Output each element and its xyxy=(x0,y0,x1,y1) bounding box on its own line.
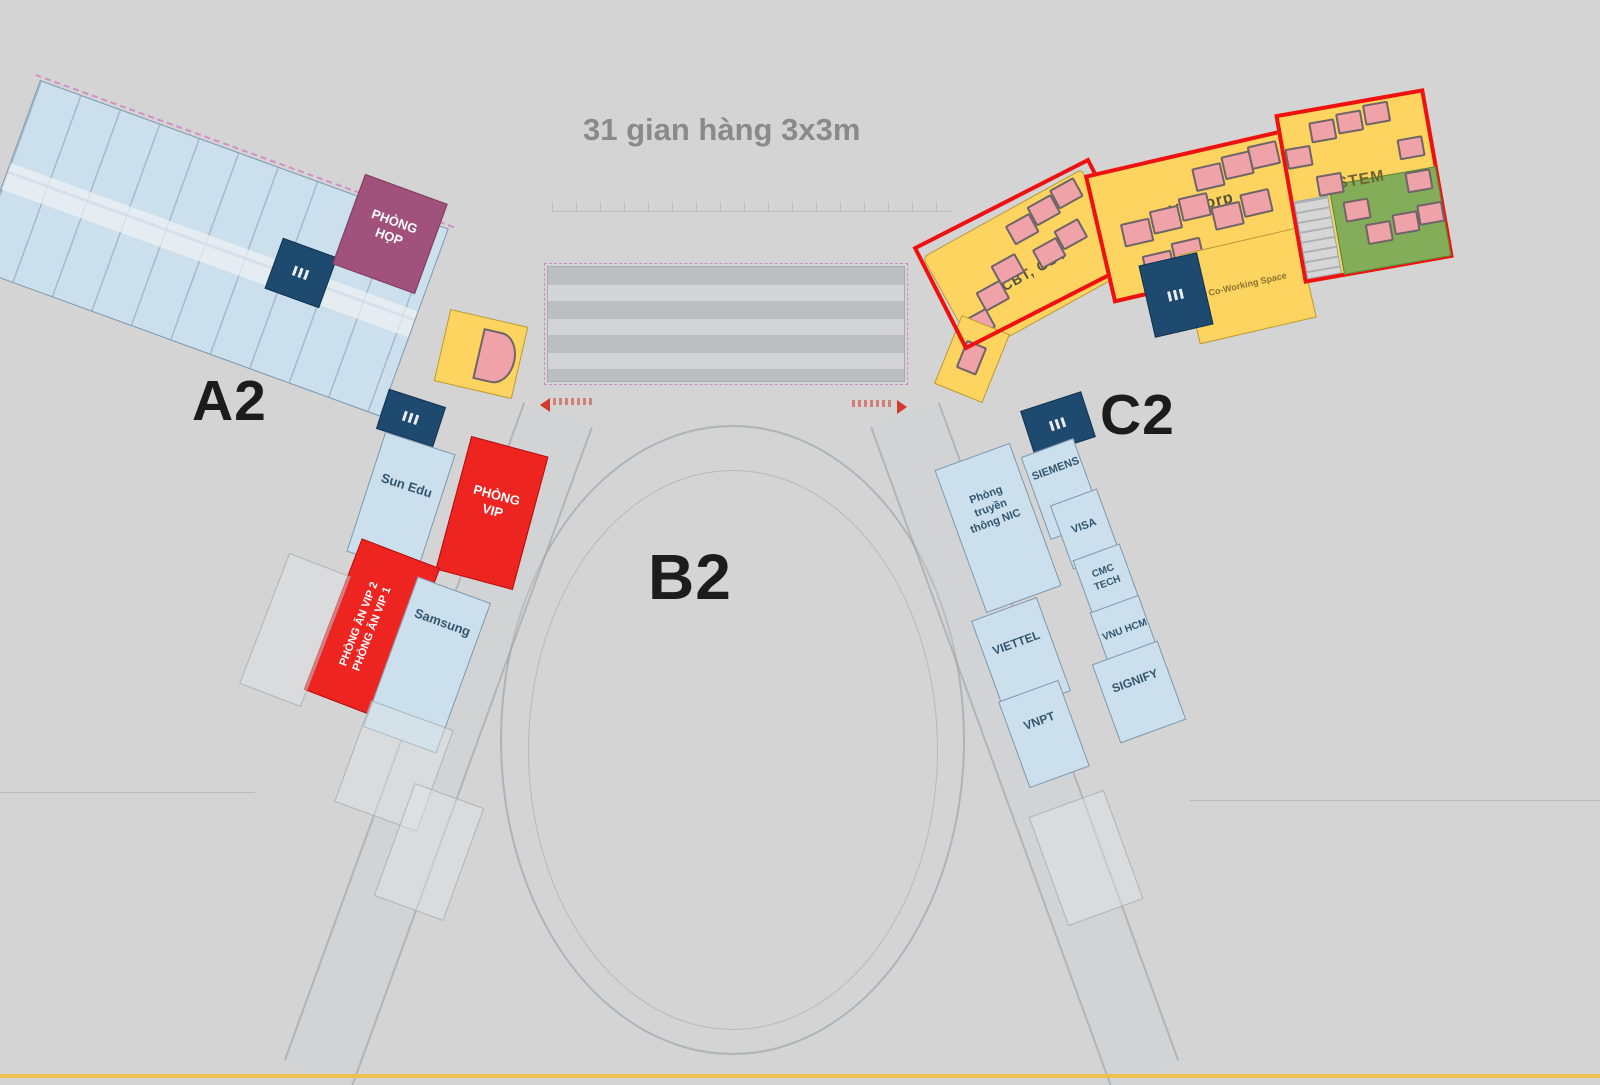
dimension-ticks xyxy=(552,202,952,212)
booth xyxy=(1247,140,1282,170)
booth xyxy=(1391,210,1420,235)
stairs-icon xyxy=(402,411,420,425)
booth xyxy=(1178,192,1213,222)
cmc-tech-label: CMC TECH xyxy=(1079,558,1133,598)
slide-bottom-strip xyxy=(0,1074,1600,1078)
booth xyxy=(1239,188,1274,218)
stairs-icon xyxy=(1049,417,1067,431)
stem-block: STEM xyxy=(1274,88,1454,284)
stage-dashed-boundary xyxy=(544,263,908,385)
booth xyxy=(1365,220,1394,245)
zone-label-b2: B2 xyxy=(648,540,732,614)
booth xyxy=(956,340,988,376)
stairs-icon xyxy=(1167,288,1185,301)
zone-label-c2: C2 xyxy=(1100,382,1175,448)
stage-marker-right-icon xyxy=(897,400,907,414)
zone-label-a2: A2 xyxy=(192,368,267,434)
meeting-room-label: PHÒNG HỌP xyxy=(346,200,438,260)
vnpt-label: VNPT xyxy=(1008,704,1071,739)
siemens-label: SIEMENS xyxy=(1016,450,1096,490)
viettel-label: VIETTEL xyxy=(982,625,1051,662)
stage-dim-label-left xyxy=(553,398,595,405)
booth xyxy=(1335,109,1364,134)
samsung-label: Samsung xyxy=(404,602,481,643)
booth xyxy=(1308,118,1337,143)
booth xyxy=(1149,205,1184,235)
booth xyxy=(1396,135,1425,160)
booth xyxy=(1120,218,1155,248)
stage-dim-label-right xyxy=(852,400,894,407)
vip-room-label: PHÒNG VIP xyxy=(453,478,537,530)
plan-title: 31 gian hàng 3x3m xyxy=(583,112,860,148)
booth xyxy=(1404,168,1433,193)
stadium-inner-ellipse xyxy=(528,470,938,1030)
yellow-kiosk-block xyxy=(434,309,529,399)
sun-edu-label: Sun Edu xyxy=(370,467,443,505)
booth xyxy=(1191,162,1226,192)
booth xyxy=(1416,201,1445,226)
blueprint-line xyxy=(1190,800,1600,801)
booth xyxy=(1316,172,1345,197)
visa-label: VISA xyxy=(1059,512,1109,541)
kiosk-半circle-shape xyxy=(472,328,521,387)
stairs-icon xyxy=(292,266,310,281)
blueprint-line xyxy=(0,792,255,793)
booth xyxy=(1342,197,1371,222)
booth xyxy=(1210,201,1245,231)
signify-label: SIGNIFY xyxy=(1101,663,1170,700)
booth xyxy=(1284,145,1313,170)
booth xyxy=(1362,101,1391,126)
